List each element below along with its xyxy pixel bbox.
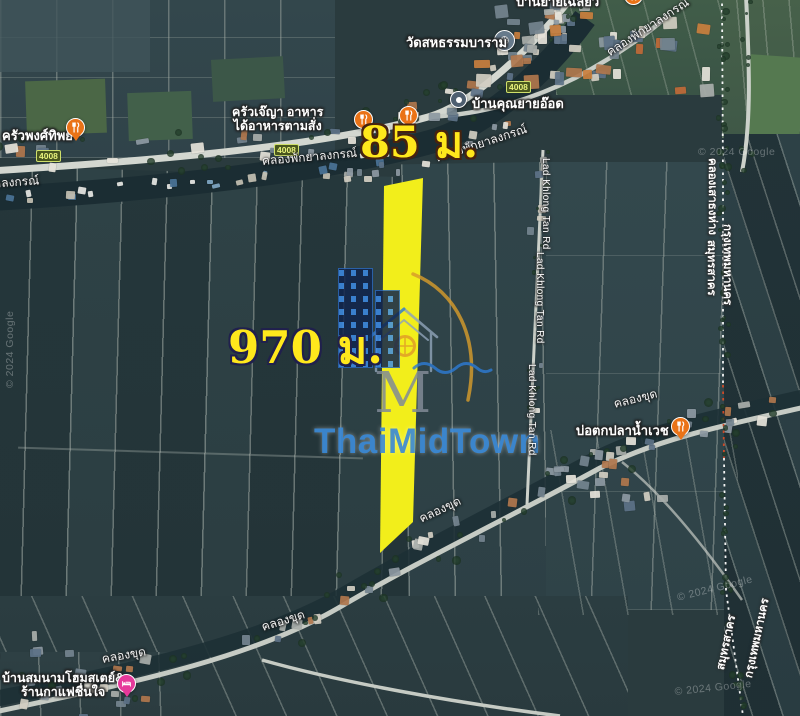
province-label-bangkok: กรุงเทพมหานคร [718,224,736,305]
parcel-length-annotation: 970 ม. [228,311,383,383]
parcel-width-annotation: 85 ม. [360,108,478,176]
watermark-brand-text: ThaiMidTown [314,422,540,462]
google-attribution: © 2024 Google [4,311,16,388]
road-label-lad-khlong-tan: Lad Khlong Tan Rd [540,158,551,250]
google-attribution: © 2024 Google [698,146,775,158]
poi-label-clipped-top[interactable]: บ้านยายเฉลียว [516,0,599,12]
poi-label-line1: ครัวเจ๊ญา อาหาร [232,106,323,120]
route-badge-label: 4008 [506,81,531,93]
restaurant-pin-icon[interactable] [671,417,690,436]
poi-label-homestay[interactable]: บ้านสมนามโฮมสเตย์& ร้านกาแฟชื่นใจ [2,672,124,699]
poi-label-line1: บ้านสมนามโฮมสเตย์& [2,672,124,686]
road-label-lad-khlong-tan: Lad Khlong Tan Rd [526,364,537,456]
satellite-map-canvas[interactable]: M ThaiMidTown 4008 4008 4008 คลองพักยาลง… [0,0,800,716]
poi-label-temple[interactable]: วัดสหธรรมบาราม [406,32,507,53]
poi-label-line2: ได้อาหารตามสั่ง [232,120,323,134]
route-badge-4008: 4008 [36,146,61,164]
route-badge-label: 4008 [36,150,61,162]
poi-label-krua-je-ya[interactable]: ครัวเจ๊ญา อาหาร ได้อาหารตามสั่ง [232,106,323,133]
poi-label-ban-khun-yai-ot[interactable]: บ้านคุณยายอ๊อด [472,93,564,114]
homestay-bed-icon[interactable] [117,674,136,693]
road-label-lad-khlong-tan: Lad Khlong Tan Rd [534,252,545,344]
poi-label-line2: ร้านกาแฟชื่นใจ [2,686,124,700]
poi-label-krua-phong-thip[interactable]: ครัวพงศ์ทิพย์ [2,125,73,146]
restaurant-pin-icon[interactable] [66,118,85,137]
poi-label-fishing-pond[interactable]: บ่อตกปลาน้ำเวช [576,420,669,441]
place-dot-icon[interactable] [450,91,467,108]
